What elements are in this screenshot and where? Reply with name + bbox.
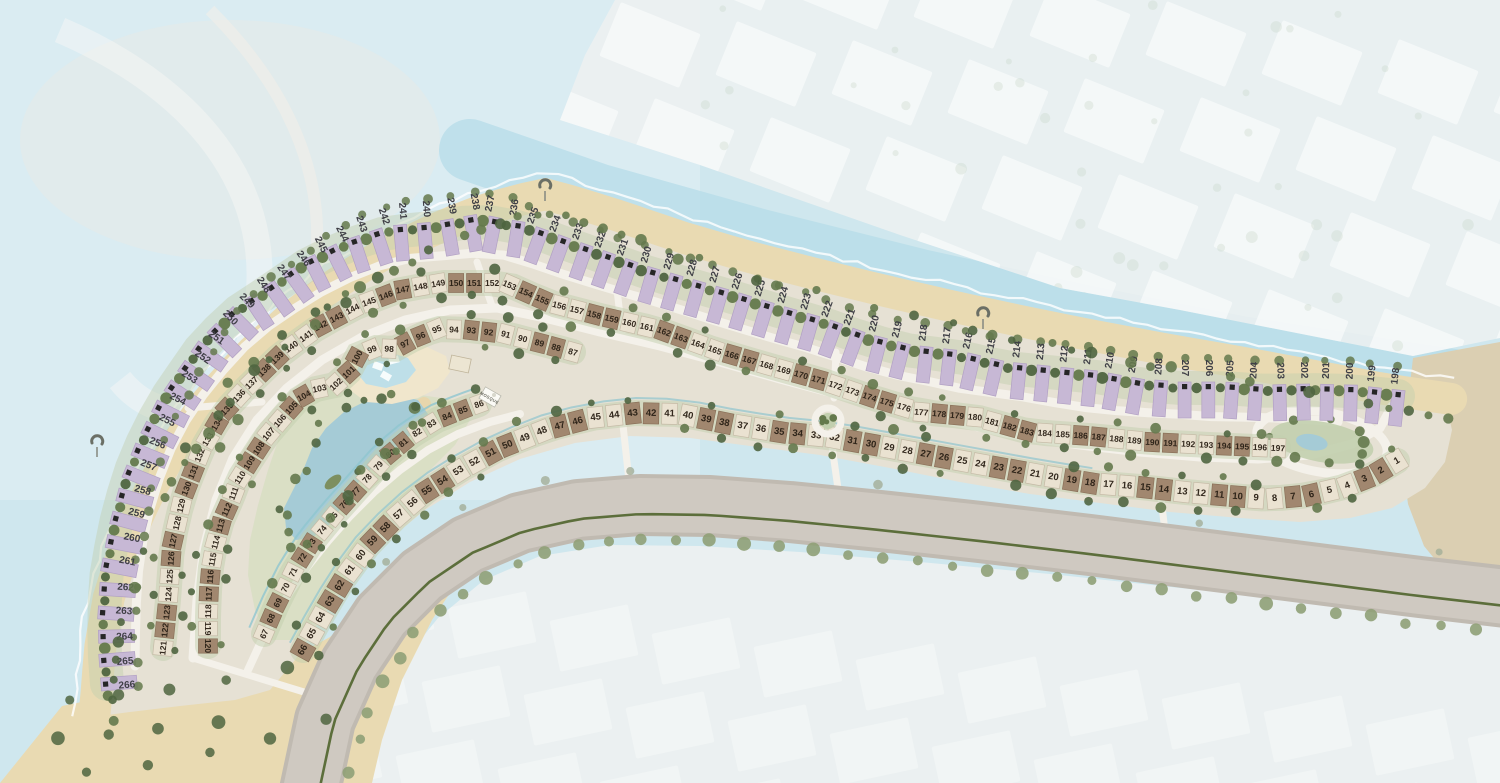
villa-roof-detail <box>101 586 107 592</box>
garden-tree <box>455 218 465 228</box>
plot-19[interactable]: 19 <box>1062 469 1081 492</box>
garden-tree <box>1068 461 1079 472</box>
garden-tree <box>1168 383 1177 392</box>
garden-tree <box>753 442 762 451</box>
garden-tree <box>886 341 897 352</box>
garden-tree <box>772 305 783 316</box>
garden-tree <box>342 290 349 297</box>
beach-palm <box>579 218 588 227</box>
plot-123[interactable]: 123 <box>156 604 176 621</box>
plot-41[interactable]: 41 <box>662 403 678 424</box>
plot-121[interactable]: 121 <box>153 640 173 657</box>
park-tree <box>303 467 311 475</box>
garden-tree <box>705 360 716 371</box>
plot-119[interactable]: 119 <box>199 621 218 635</box>
plot-number-185: 185 <box>1055 429 1070 440</box>
park-tree <box>303 540 312 549</box>
plot-150[interactable]: 150 <box>449 274 464 293</box>
park-tree <box>411 402 420 411</box>
garden-tree <box>301 573 311 583</box>
plot-207[interactable] <box>1178 382 1191 418</box>
park-tree <box>311 438 320 447</box>
plot-number-218: 218 <box>917 323 930 341</box>
beach-palm <box>221 675 230 684</box>
plot-149[interactable]: 149 <box>429 273 447 294</box>
plot-126[interactable]: 126 <box>161 550 181 566</box>
garden-tree <box>1094 448 1101 455</box>
garden-tree <box>898 464 908 474</box>
beach-palm <box>562 212 570 220</box>
street-tree <box>877 552 888 563</box>
garden-tree <box>248 480 256 488</box>
plot-203[interactable] <box>1273 385 1287 421</box>
plot-240[interactable] <box>417 222 433 259</box>
plot-number-217: 217 <box>941 326 954 344</box>
beach-palm <box>65 695 74 704</box>
plot-number-34: 34 <box>792 428 804 440</box>
plot-179[interactable]: 179 <box>949 405 966 425</box>
garden-tree <box>1271 456 1282 467</box>
plot-number-120: 120 <box>203 639 213 653</box>
garden-tree <box>1238 457 1247 466</box>
garden-tree <box>215 442 226 453</box>
plot-122[interactable]: 122 <box>155 622 175 639</box>
garden-tree <box>98 620 107 629</box>
garden-tree <box>277 330 287 340</box>
garden-tree <box>277 392 286 401</box>
street-tree <box>1436 621 1446 631</box>
park-tree <box>376 393 386 403</box>
plot-number-44: 44 <box>608 409 620 421</box>
garden-tree <box>1355 459 1364 468</box>
beach-palm <box>143 760 153 770</box>
beach-palm <box>152 723 164 735</box>
plot-197[interactable]: 197 <box>1270 438 1286 458</box>
beach-palm <box>160 493 169 502</box>
plot-number-13: 13 <box>1176 486 1188 498</box>
plot-number-39: 39 <box>700 413 713 426</box>
plot-116[interactable]: 116 <box>200 569 220 585</box>
street-tree <box>604 536 614 546</box>
beach-palm <box>129 582 141 594</box>
beach-palm <box>266 356 273 363</box>
garden-tree <box>1216 383 1225 392</box>
beach-palm <box>870 304 878 312</box>
plot-number-186: 186 <box>1073 430 1088 441</box>
garden-tree <box>341 521 348 528</box>
street-tree <box>458 589 469 600</box>
plot-118[interactable]: 118 <box>198 604 218 619</box>
beach-palm <box>408 258 416 266</box>
plot-193[interactable]: 193 <box>1198 435 1214 455</box>
garden-tree <box>1334 385 1345 396</box>
beach-palm <box>672 254 683 265</box>
villa-roof-detail <box>1206 384 1211 389</box>
plot-number-9: 9 <box>1253 492 1259 503</box>
garden-tree <box>569 241 580 252</box>
plot-number-241: 241 <box>396 202 408 220</box>
plot-11[interactable]: 11 <box>1211 484 1228 506</box>
garden-tree <box>99 642 111 654</box>
plot-number-151: 151 <box>467 278 481 288</box>
garden-tree <box>468 291 476 299</box>
plot-22[interactable]: 22 <box>1007 459 1026 482</box>
park-tree <box>356 465 366 475</box>
garden-tree <box>178 572 185 579</box>
plot-42[interactable]: 42 <box>643 403 659 424</box>
plot-191[interactable]: 191 <box>1162 433 1178 453</box>
plot-34[interactable]: 34 <box>789 423 807 445</box>
street-tree <box>362 707 373 718</box>
street-tree <box>459 504 466 511</box>
garden-tree <box>727 291 739 303</box>
plot-148[interactable]: 148 <box>411 276 429 297</box>
plot-98[interactable]: 98 <box>381 339 396 359</box>
garden-tree <box>1194 506 1203 515</box>
beach-palm <box>181 459 188 466</box>
garden-tree <box>1120 376 1132 388</box>
beach-palm <box>968 326 978 336</box>
villa-roof-detail <box>1134 380 1140 386</box>
plot-number-197: 197 <box>1271 443 1286 454</box>
street-tree <box>376 674 390 688</box>
garden-tree <box>559 286 568 295</box>
garden-tree <box>256 389 265 398</box>
plot-number-123: 123 <box>161 604 172 619</box>
plot-number-15: 15 <box>1140 482 1152 494</box>
plot-16[interactable]: 16 <box>1118 475 1135 497</box>
street-tree <box>671 535 681 545</box>
plot-number-198: 198 <box>1389 367 1402 385</box>
garden-tree <box>1010 480 1021 491</box>
garden-tree <box>489 264 500 275</box>
plot-189[interactable]: 189 <box>1126 430 1143 450</box>
garden-tree <box>332 558 340 566</box>
plot-number-23: 23 <box>992 461 1004 474</box>
villa-roof-detail <box>1229 384 1235 390</box>
villa-roof-detail <box>1395 392 1401 398</box>
street-tree <box>702 533 715 546</box>
beach-palm <box>1443 413 1453 423</box>
garden-tree <box>311 307 321 317</box>
garden-tree <box>717 434 726 443</box>
garden-tree <box>477 215 489 227</box>
plot-190[interactable]: 190 <box>1144 432 1160 452</box>
beach-palm <box>281 661 295 675</box>
plot-241[interactable] <box>394 224 410 261</box>
plot-number-180: 180 <box>967 411 982 422</box>
plot-184[interactable]: 184 <box>1037 423 1053 443</box>
plot-18[interactable]: 18 <box>1081 471 1100 494</box>
plot-196[interactable]: 196 <box>1252 437 1268 457</box>
garden-tree <box>1312 503 1322 513</box>
street-tree <box>737 537 751 551</box>
villa-roof-detail <box>103 681 109 687</box>
street-tree <box>948 562 957 571</box>
plot-26[interactable]: 26 <box>934 446 953 469</box>
villa-roof-detail <box>1064 370 1070 376</box>
garden-tree <box>180 442 191 453</box>
plot-36[interactable]: 36 <box>752 417 771 440</box>
garden-tree <box>1388 445 1395 452</box>
plot-20[interactable]: 20 <box>1044 466 1063 489</box>
garden-tree <box>937 470 944 477</box>
plot-24[interactable]: 24 <box>971 453 990 476</box>
plot-45[interactable]: 45 <box>587 406 605 429</box>
beach-palm <box>354 281 366 293</box>
plot-number-122: 122 <box>159 622 170 637</box>
garden-tree <box>1286 385 1296 395</box>
plot-number-263: 263 <box>115 605 133 617</box>
plot-number-98: 98 <box>384 343 394 353</box>
garden-tree <box>447 454 456 463</box>
garden-tree <box>443 487 453 497</box>
garden-tree <box>1224 430 1231 437</box>
plot-number-28: 28 <box>901 445 913 458</box>
plot-number-206: 206 <box>1203 360 1214 377</box>
plot-number-188: 188 <box>1109 433 1124 444</box>
plot-147[interactable]: 147 <box>394 279 412 300</box>
garden-tree <box>1026 365 1037 376</box>
plot-number-204: 204 <box>1248 361 1260 379</box>
beach-palm <box>264 732 276 744</box>
garden-tree <box>130 457 139 466</box>
garden-tree <box>1191 383 1201 393</box>
garden-tree <box>702 326 709 333</box>
garden-tree <box>932 349 943 360</box>
garden-tree <box>1084 497 1093 506</box>
garden-tree <box>109 525 120 536</box>
beach-palm <box>476 225 486 235</box>
garden-tree <box>868 379 879 390</box>
plot-205[interactable] <box>1223 382 1239 419</box>
plot-31[interactable]: 31 <box>843 429 862 452</box>
plot-number-14: 14 <box>1158 484 1170 496</box>
park-tree <box>345 496 354 505</box>
garden-tree <box>1096 372 1108 384</box>
plot-number-152: 152 <box>485 278 499 288</box>
plot-7[interactable]: 7 <box>1284 485 1302 507</box>
garden-tree <box>1011 410 1018 417</box>
plot-number-41: 41 <box>664 408 676 419</box>
garden-tree <box>437 398 447 408</box>
beach-palm <box>1364 399 1374 409</box>
plot-17[interactable]: 17 <box>1100 473 1117 495</box>
garden-tree <box>407 450 417 460</box>
beach-palm <box>950 319 957 326</box>
garden-tree <box>788 443 798 453</box>
street-tree <box>394 652 407 665</box>
plot-152[interactable]: 152 <box>485 274 500 293</box>
beach-palm <box>495 218 506 229</box>
plot-124[interactable]: 124 <box>158 586 178 602</box>
plot-194[interactable]: 194 <box>1216 436 1232 456</box>
plot-200[interactable] <box>1344 385 1358 421</box>
plot-number-45: 45 <box>590 411 602 423</box>
beach-palm <box>1049 339 1057 347</box>
garden-tree <box>232 414 243 425</box>
garden-tree <box>482 344 489 351</box>
beach-palm <box>389 266 399 276</box>
garden-tree <box>919 425 926 432</box>
plot-number-18: 18 <box>1084 477 1096 490</box>
street-tree <box>806 543 820 557</box>
street-tree <box>843 550 853 560</box>
street-tree <box>434 604 446 616</box>
plot-151[interactable]: 151 <box>467 274 482 293</box>
beach-palm <box>324 303 331 310</box>
street-tree <box>635 534 646 545</box>
villa-roof-detail <box>468 217 474 223</box>
plot-185[interactable]: 185 <box>1055 424 1071 444</box>
plot-14[interactable]: 14 <box>1155 478 1173 501</box>
plot-30[interactable]: 30 <box>862 433 881 456</box>
plot-number-192: 192 <box>1181 439 1196 450</box>
park-tree <box>326 513 336 523</box>
plot-180[interactable]: 180 <box>967 407 984 427</box>
garden-tree <box>105 549 114 558</box>
plot-120[interactable]: 120 <box>199 639 218 654</box>
plot-21[interactable]: 21 <box>1026 462 1045 485</box>
plot-number-240: 240 <box>420 200 432 218</box>
garden-tree <box>1060 443 1069 452</box>
garden-tree <box>591 249 602 260</box>
plot-15[interactable]: 15 <box>1137 476 1155 499</box>
plot-number-43: 43 <box>627 407 639 419</box>
plot-27[interactable]: 27 <box>916 443 935 466</box>
plot-187[interactable]: 187 <box>1090 427 1107 447</box>
plot-125[interactable]: 125 <box>160 568 180 584</box>
plot-35[interactable]: 35 <box>770 420 789 443</box>
garden-tree <box>1142 469 1150 477</box>
beach-palm <box>213 410 223 420</box>
plot-10[interactable]: 10 <box>1229 486 1246 508</box>
garden-tree <box>533 309 543 319</box>
street-tree <box>1470 623 1482 635</box>
garden-tree <box>101 572 110 581</box>
plot-number-36: 36 <box>755 423 767 436</box>
garden-tree <box>384 361 390 367</box>
plot-12[interactable]: 12 <box>1192 482 1209 504</box>
plot-92[interactable]: 92 <box>480 322 496 343</box>
garden-tree <box>133 658 143 668</box>
garden-tree <box>512 417 521 426</box>
street-tree <box>1226 592 1238 604</box>
garden-tree <box>939 394 946 401</box>
plot-93[interactable]: 93 <box>463 320 479 341</box>
garden-tree <box>384 227 393 236</box>
garden-tree <box>416 267 425 276</box>
plot-number-42: 42 <box>646 408 657 419</box>
plot-number-19: 19 <box>1066 474 1078 487</box>
garden-tree <box>344 389 352 397</box>
plot-number-200: 200 <box>1345 362 1356 379</box>
plot-177[interactable]: 177 <box>913 402 930 422</box>
garden-tree <box>395 324 406 335</box>
villa-roof-detail <box>100 610 106 616</box>
beach-palm <box>340 297 351 308</box>
garden-tree <box>1050 368 1060 378</box>
plot-29[interactable]: 29 <box>880 436 899 459</box>
street-tree <box>538 546 551 559</box>
plot-number-124: 124 <box>163 587 174 602</box>
garden-tree <box>1358 387 1368 397</box>
plot-195[interactable]: 195 <box>1234 437 1250 457</box>
plot-44[interactable]: 44 <box>605 404 623 427</box>
plot-206[interactable] <box>1202 382 1215 418</box>
garden-tree <box>841 327 851 337</box>
plot-208[interactable] <box>1152 380 1168 417</box>
plot-192[interactable]: 192 <box>1180 434 1196 454</box>
garden-tree <box>551 356 559 364</box>
park-tree <box>290 474 300 484</box>
plot-28[interactable]: 28 <box>898 439 917 462</box>
plot-number-177: 177 <box>914 406 929 417</box>
garden-tree <box>132 607 140 615</box>
plot-37[interactable]: 37 <box>733 414 752 437</box>
plot-23[interactable]: 23 <box>989 456 1008 479</box>
plot-115[interactable]: 115 <box>202 551 223 568</box>
garden-tree <box>267 578 278 589</box>
master-plan-map: 1981992002012022032042052062072082092102… <box>0 0 1500 783</box>
park-tree <box>283 510 292 519</box>
plot-178[interactable]: 178 <box>931 404 948 424</box>
plot-number-30: 30 <box>865 438 877 451</box>
plot-13[interactable]: 13 <box>1173 480 1191 503</box>
garden-tree <box>171 647 178 654</box>
garden-tree <box>192 551 200 559</box>
plot-201[interactable] <box>1320 384 1334 420</box>
plot-number-27: 27 <box>920 448 932 461</box>
beach-palm <box>1425 411 1433 419</box>
plot-number-7: 7 <box>1290 491 1296 502</box>
beach-palm <box>987 330 997 340</box>
garden-tree <box>1380 389 1392 401</box>
plot-number-126: 126 <box>165 551 176 566</box>
plot-number-8: 8 <box>1271 493 1277 504</box>
plot-43[interactable]: 43 <box>624 402 642 425</box>
street-tree <box>573 539 584 550</box>
garden-tree <box>375 438 384 447</box>
plot-number-116: 116 <box>205 569 216 584</box>
garden-tree <box>904 387 913 396</box>
garden-tree <box>188 588 195 595</box>
street-tree <box>873 480 883 490</box>
garden-tree <box>795 312 806 323</box>
plot-117[interactable]: 117 <box>199 586 219 601</box>
beach-palm <box>909 310 919 320</box>
plot-188[interactable]: 188 <box>1108 428 1125 448</box>
garden-tree <box>140 532 149 541</box>
roundabout-tree <box>829 414 837 422</box>
garden-tree <box>477 474 484 481</box>
villa-roof-detail <box>1372 389 1378 395</box>
plot-number-187: 187 <box>1091 431 1106 442</box>
plot-8[interactable]: 8 <box>1266 487 1284 509</box>
beach-palm <box>248 364 260 376</box>
street-tree <box>1191 591 1202 602</box>
garden-tree <box>607 328 616 337</box>
plot-186[interactable]: 186 <box>1073 425 1089 445</box>
plot-number-194: 194 <box>1217 440 1232 451</box>
plot-94[interactable]: 94 <box>447 320 462 339</box>
garden-tree <box>115 502 125 512</box>
garden-tree <box>680 424 689 433</box>
street-tree <box>356 735 365 744</box>
beach-palm <box>696 254 704 262</box>
plot-number-11: 11 <box>1214 489 1226 501</box>
plot-25[interactable]: 25 <box>953 449 972 472</box>
